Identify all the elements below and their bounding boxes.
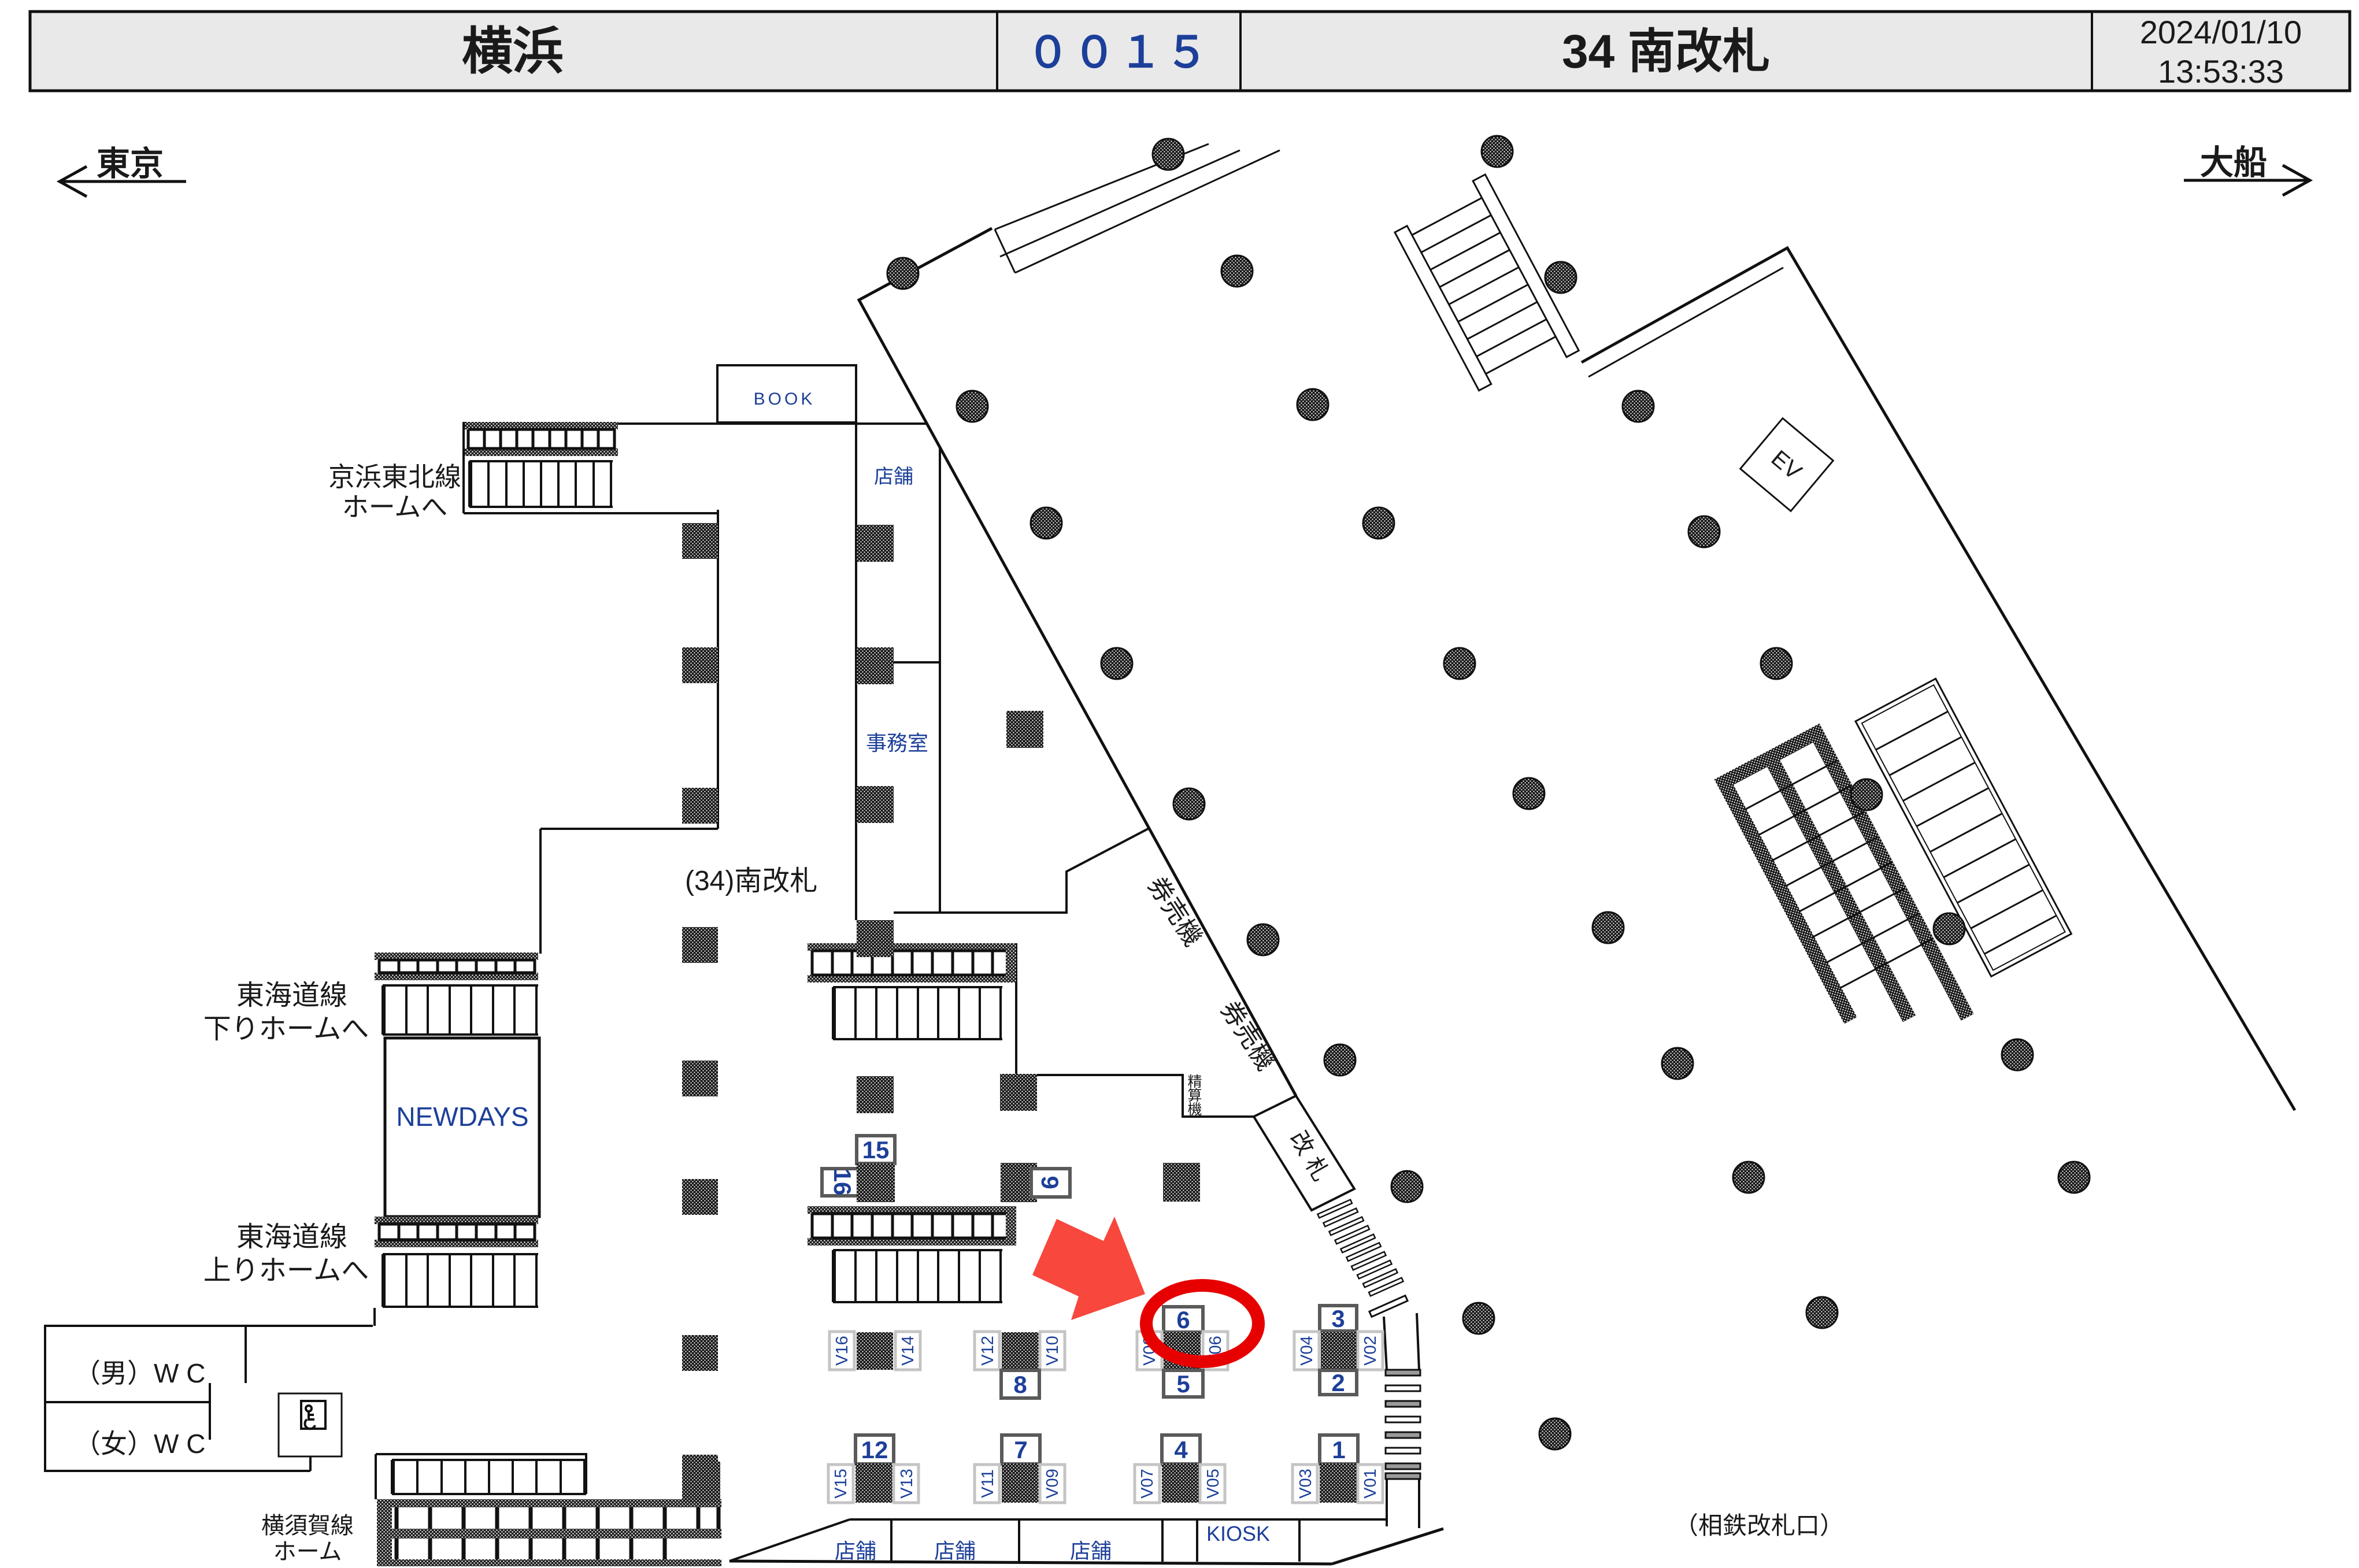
svg-text:東京: 東京 (97, 145, 164, 183)
svg-text:V12: V12 (979, 1336, 997, 1366)
svg-text:（男）W C: （男）W C (74, 1358, 205, 1388)
svg-text:(34)南改札: (34)南改札 (685, 866, 817, 896)
svg-text:V09: V09 (1043, 1469, 1062, 1499)
svg-text:横須賀線: 横須賀線 (261, 1513, 354, 1539)
svg-text:5: 5 (1176, 1370, 1190, 1398)
svg-text:V14: V14 (899, 1336, 917, 1366)
svg-text:（相鉄改札口）: （相鉄改札口） (1674, 1512, 1844, 1539)
svg-text:V04: V04 (1298, 1336, 1316, 1366)
svg-text:BOOK: BOOK (754, 390, 816, 409)
svg-text:3: 3 (1331, 1305, 1345, 1332)
svg-text:店舗: 店舗 (1070, 1539, 1112, 1563)
svg-text:東海道線: 東海道線 (236, 980, 347, 1011)
svg-text:V13: V13 (898, 1469, 916, 1499)
svg-text:東海道線: 東海道線 (236, 1222, 347, 1252)
svg-text:V16: V16 (833, 1336, 851, 1366)
svg-text:8: 8 (1013, 1371, 1027, 1398)
svg-text:店舗: 店舗 (874, 466, 913, 488)
svg-text:V03: V03 (1297, 1469, 1315, 1499)
svg-text:V10: V10 (1043, 1336, 1062, 1366)
svg-text:V05: V05 (1204, 1469, 1223, 1499)
svg-text:精算機: 精算機 (1187, 1074, 1202, 1118)
svg-text:V07: V07 (1138, 1469, 1157, 1499)
svg-text:15: 15 (862, 1136, 890, 1163)
svg-text:2: 2 (1331, 1369, 1345, 1396)
svg-text:ホーム: ホーム (273, 1539, 342, 1565)
svg-text:13:53:33: 13:53:33 (2158, 53, 2284, 90)
svg-text:事務室: 事務室 (866, 731, 928, 755)
svg-text:7: 7 (1014, 1436, 1027, 1463)
svg-text:4: 4 (1174, 1436, 1188, 1463)
svg-text:6: 6 (1176, 1306, 1190, 1333)
svg-text:1: 1 (1332, 1436, 1345, 1463)
svg-text:16: 16 (829, 1169, 856, 1196)
svg-text:V15: V15 (832, 1469, 850, 1499)
svg-text:V02: V02 (1361, 1336, 1380, 1366)
svg-text:V01: V01 (1361, 1469, 1380, 1499)
svg-text:12: 12 (861, 1436, 888, 1463)
svg-text:（女）W C: （女）W C (74, 1429, 205, 1459)
svg-text:店舗: 店舗 (835, 1539, 876, 1563)
svg-text:NEWDAYS: NEWDAYS (396, 1102, 528, 1132)
svg-text:下りホームへ: 下りホームへ (203, 1014, 369, 1044)
svg-text:2024/01/10: 2024/01/10 (2140, 14, 2302, 50)
svg-text:大船: 大船 (2200, 144, 2267, 181)
svg-text:ホームへ: ホームへ (342, 492, 448, 522)
svg-text:京浜東北線: 京浜東北線 (328, 462, 461, 492)
svg-text:００１５: ００１５ (1027, 28, 1212, 76)
svg-text:V11: V11 (979, 1469, 997, 1497)
svg-text:横浜: 横浜 (462, 23, 564, 80)
svg-text:上りホームへ: 上りホームへ (203, 1255, 369, 1286)
svg-text:9: 9 (1036, 1176, 1064, 1189)
svg-text:34 南改札: 34 南改札 (1562, 25, 1770, 78)
svg-text:KIOSK: KIOSK (1206, 1522, 1270, 1545)
svg-text:店舗: 店舗 (934, 1539, 976, 1563)
